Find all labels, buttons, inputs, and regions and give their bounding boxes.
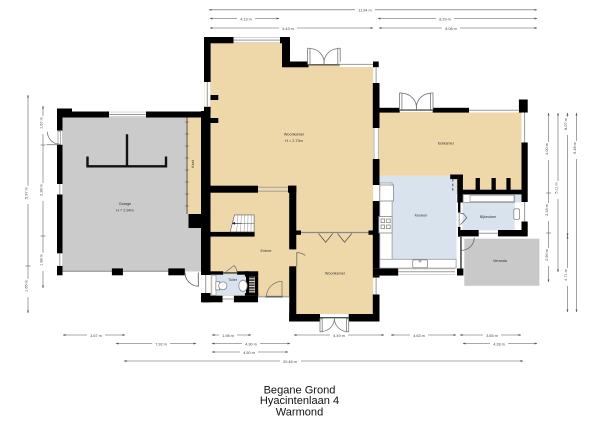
svg-text:2.90 m: 2.90 m (545, 249, 549, 261)
svg-text:Toilet: Toilet (228, 278, 238, 282)
svg-text:4.30 m: 4.30 m (245, 342, 257, 346)
svg-text:4.49 m: 4.49 m (333, 334, 345, 338)
svg-text:Warmond: Warmond (276, 406, 323, 418)
svg-text:Kast: Kast (191, 159, 195, 167)
svg-text:Woonkamer: Woonkamer (284, 133, 305, 137)
svg-text:4.13 m: 4.13 m (240, 17, 252, 21)
svg-text:9.43 m: 9.43 m (282, 27, 294, 31)
svg-text:Eetkamer: Eetkamer (438, 142, 455, 146)
svg-text:9.48 m: 9.48 m (573, 142, 577, 154)
svg-text:4.00 m: 4.00 m (545, 143, 549, 155)
svg-text:3.55 m: 3.55 m (486, 334, 498, 338)
svg-text:11.94 m: 11.94 m (358, 9, 371, 13)
svg-text:7.92 m: 7.92 m (155, 342, 167, 346)
svg-text:Woonkamer: Woonkamer (325, 272, 346, 276)
svg-text:4.28 m: 4.28 m (493, 342, 505, 346)
svg-text:2.38 m: 2.38 m (40, 184, 44, 196)
svg-text:Keuken: Keuken (415, 214, 428, 218)
svg-text:1.67 m: 1.67 m (40, 117, 44, 129)
svg-text:4.63 m: 4.63 m (413, 334, 425, 338)
svg-text:5.11 m: 5.11 m (555, 182, 559, 193)
svg-text:Entree: Entree (260, 249, 271, 253)
svg-text:Veranda: Veranda (493, 259, 508, 263)
svg-text:Garage: Garage (119, 202, 132, 206)
svg-text:1.98 m: 1.98 m (40, 254, 44, 266)
svg-text:H = 2.94m: H = 2.94m (116, 208, 133, 212)
svg-text:2.18 m: 2.18 m (545, 204, 549, 216)
svg-text:5.97 m: 5.97 m (25, 187, 29, 199)
svg-text:1.98 m: 1.98 m (222, 334, 234, 338)
svg-text:Bijkeuken: Bijkeuken (480, 215, 496, 219)
svg-text:4.71 m: 4.71 m (564, 269, 568, 281)
svg-text:8.29 m: 8.29 m (439, 17, 451, 21)
svg-text:3.67 m: 3.67 m (90, 334, 102, 338)
svg-text:1.65 m: 1.65 m (25, 280, 29, 292)
svg-text:8.08 m: 8.08 m (445, 27, 457, 31)
svg-text:20.45 m: 20.45 m (283, 360, 297, 364)
svg-text:4.50 m: 4.50 m (243, 351, 255, 355)
svg-text:8.07 m: 8.07 m (564, 118, 568, 130)
svg-text:H = 2.73m: H = 2.73m (285, 139, 302, 143)
